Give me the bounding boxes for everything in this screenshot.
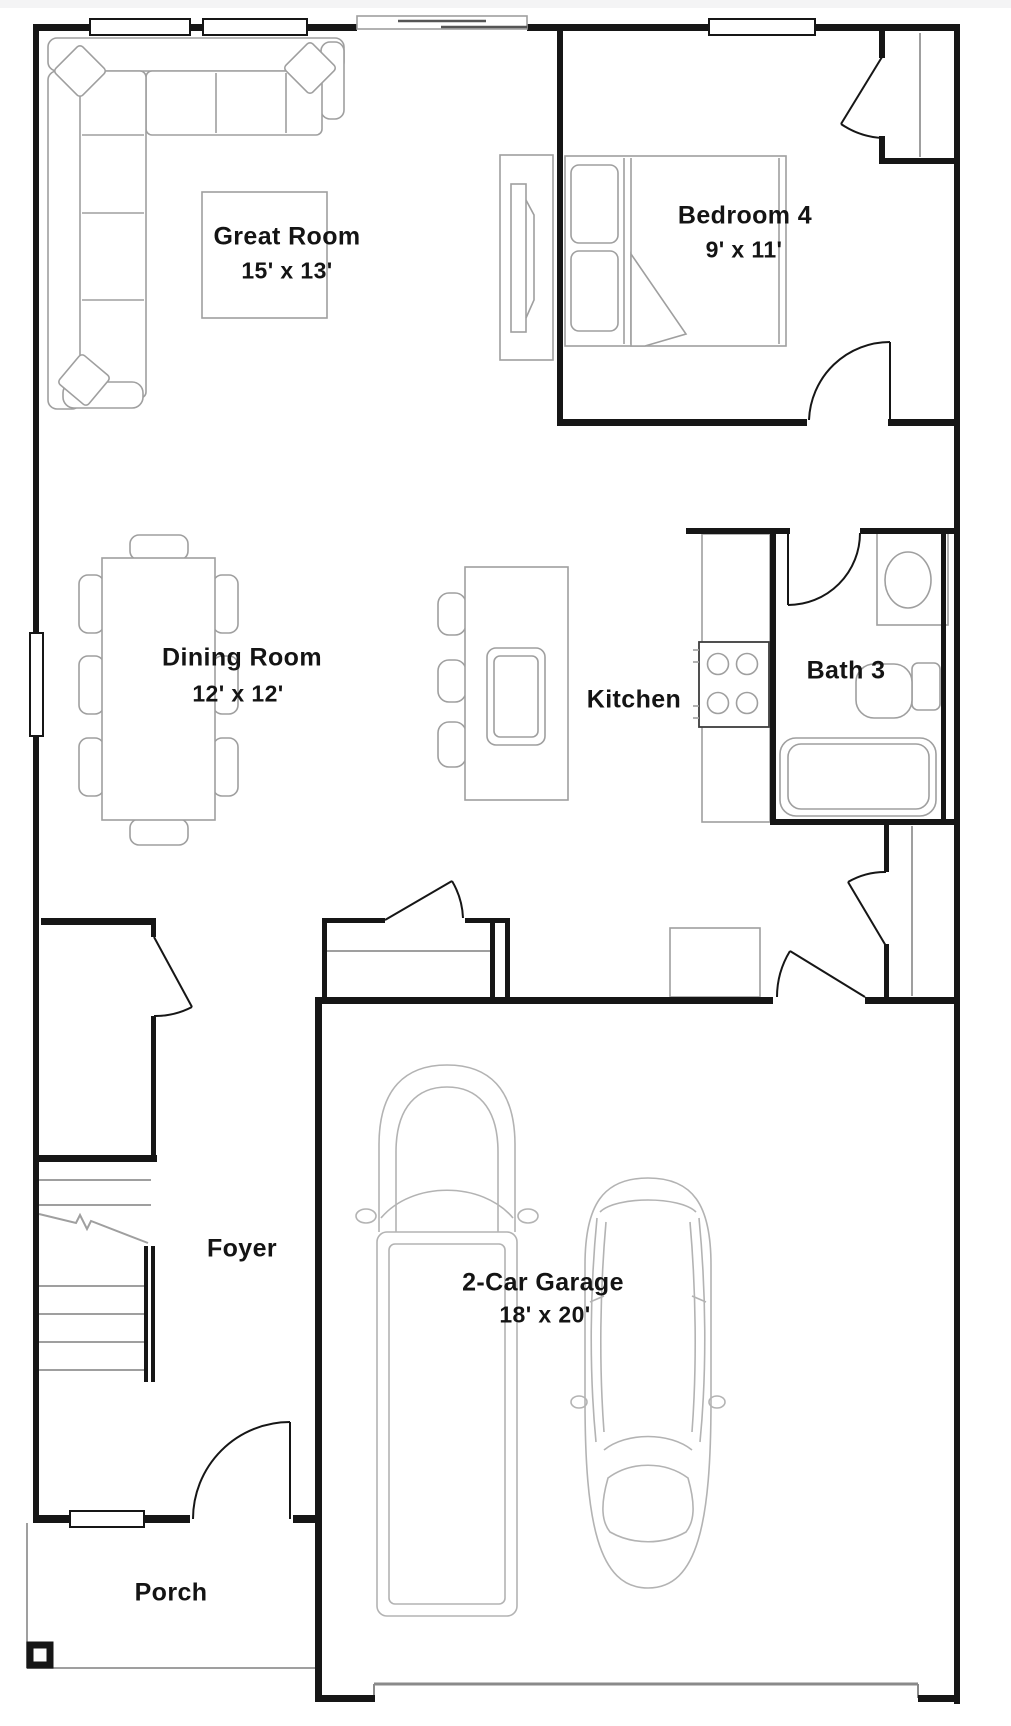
room-dims-dining-room: 12' x 12'	[192, 681, 283, 708]
room-label-bath3: Bath 3	[807, 657, 886, 686]
floor-plan-drawing	[0, 0, 1011, 1726]
stair-break-line	[39, 1214, 148, 1243]
bedroom-door	[809, 342, 890, 420]
kitchen-counter	[693, 534, 770, 822]
toilet	[877, 533, 948, 625]
pickup-truck	[356, 1065, 538, 1616]
great-room-window	[90, 19, 190, 35]
great-room-window	[203, 19, 307, 35]
car	[571, 1178, 725, 1588]
top-bumpout	[357, 16, 527, 29]
room-label-porch: Porch	[135, 1579, 208, 1608]
room-label-great-room: Great Room	[213, 223, 360, 252]
pantry-door	[385, 881, 463, 920]
tv-console	[500, 155, 553, 360]
bathtub	[780, 738, 936, 816]
porch-post	[30, 1645, 50, 1665]
hall-door	[848, 872, 886, 946]
foyer-closet-door	[154, 937, 192, 1016]
car-hood	[603, 1465, 693, 1542]
garage-entry-door	[777, 951, 865, 997]
stairs	[39, 1180, 151, 1370]
foyer-window	[70, 1511, 144, 1527]
bedroom-closet-door	[841, 57, 882, 138]
room-label-bedroom4: Bedroom 4	[678, 202, 812, 231]
mechanical-closet	[670, 928, 760, 997]
garage-door	[374, 1684, 918, 1698]
room-label-garage: 2-Car Garage	[462, 1269, 624, 1298]
stove	[693, 642, 769, 727]
room-dims-bedroom4: 9' x 11'	[706, 237, 783, 264]
room-dims-garage: 18' x 20'	[499, 1302, 590, 1329]
walls	[33, 24, 960, 1704]
room-label-foyer: Foyer	[207, 1235, 277, 1264]
room-label-kitchen: Kitchen	[587, 686, 681, 715]
front-door	[193, 1422, 290, 1519]
room-dims-great-room: 15' x 13'	[241, 258, 332, 285]
room-label-dining-room: Dining Room	[162, 644, 322, 673]
bath3-door	[788, 533, 860, 605]
great-room-table	[202, 192, 327, 318]
dining-window	[30, 633, 43, 736]
kitchen-island	[438, 567, 568, 800]
bedroom-window	[709, 19, 815, 35]
floor-plan: Great Room 15' x 13' Bedroom 4 9' x 11' …	[0, 0, 1011, 1726]
